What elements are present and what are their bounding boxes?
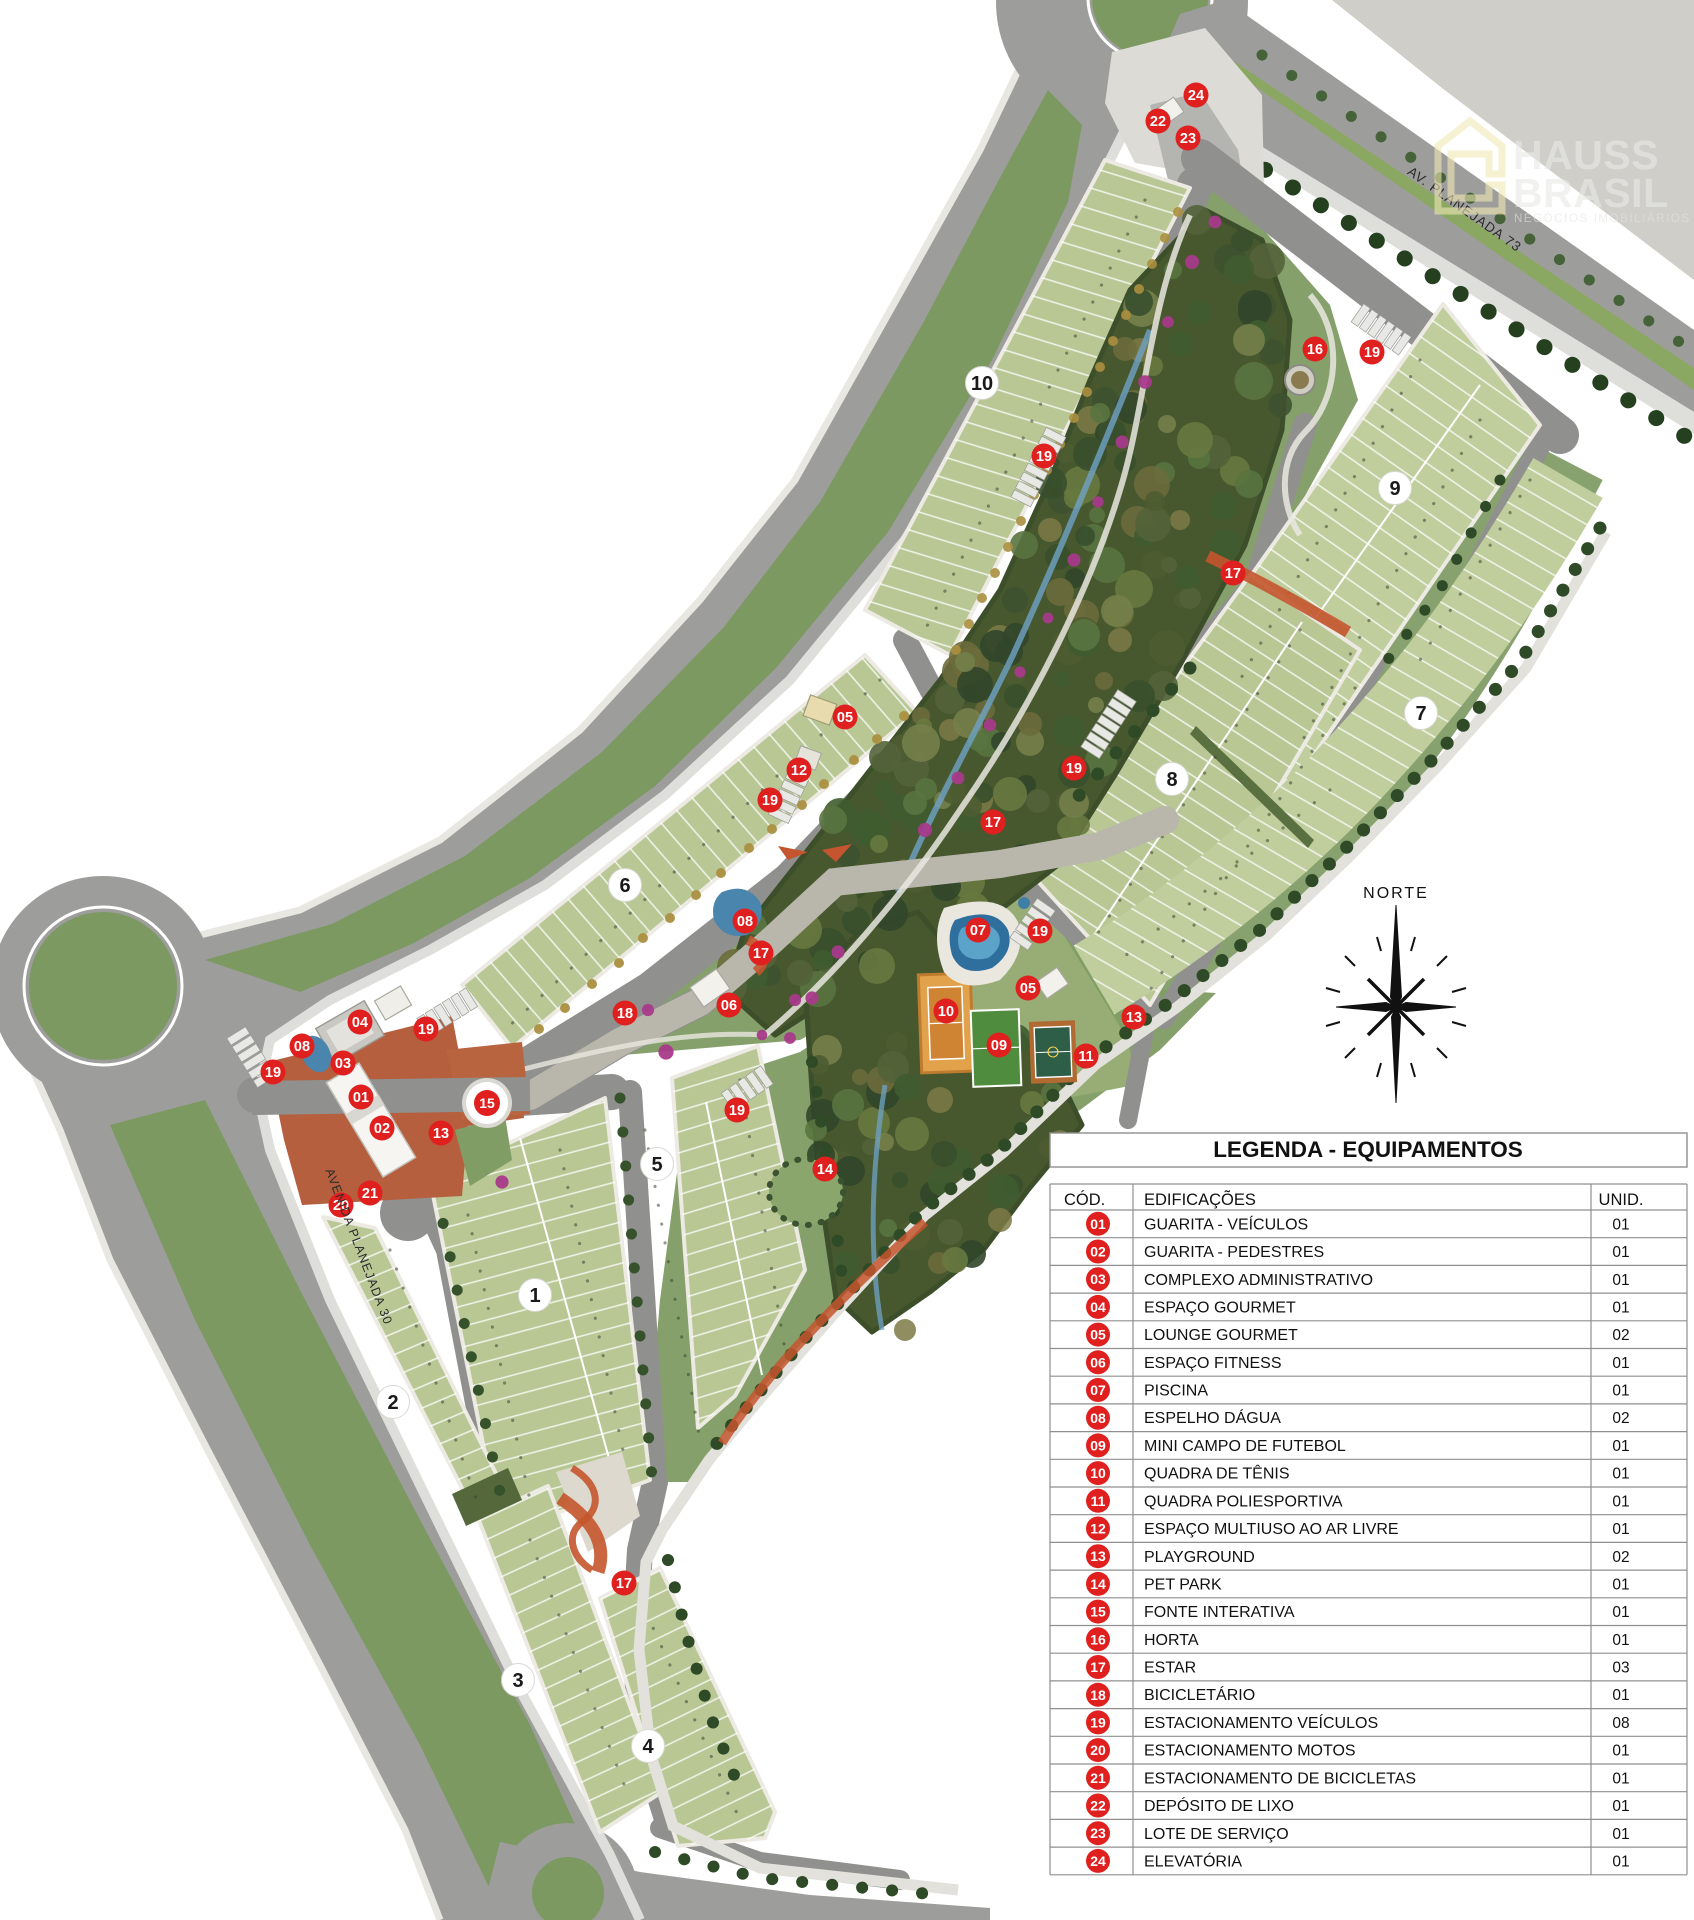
svg-text:02: 02 (374, 1121, 390, 1137)
svg-text:01: 01 (1612, 1632, 1629, 1649)
svg-text:08: 08 (737, 914, 753, 930)
svg-text:02: 02 (1612, 1410, 1629, 1427)
svg-text:GUARITA - VEÍCULOS: GUARITA - VEÍCULOS (1144, 1214, 1308, 1233)
svg-text:BRASIL: BRASIL (1513, 170, 1669, 216)
svg-text:01: 01 (1612, 1521, 1629, 1538)
svg-text:BICICLETÁRIO: BICICLETÁRIO (1144, 1685, 1255, 1704)
svg-text:05: 05 (1090, 1327, 1106, 1343)
svg-text:06: 06 (1090, 1354, 1106, 1370)
svg-text:10: 10 (938, 1004, 954, 1020)
svg-text:19: 19 (729, 1103, 745, 1119)
svg-text:03: 03 (1090, 1271, 1106, 1287)
svg-text:22: 22 (1150, 114, 1166, 130)
svg-text:01: 01 (1612, 1826, 1629, 1843)
svg-text:24: 24 (1188, 88, 1204, 104)
svg-text:15: 15 (479, 1095, 495, 1111)
svg-text:HORTA: HORTA (1144, 1632, 1199, 1649)
svg-text:1: 1 (529, 1285, 540, 1307)
svg-text:COMPLEXO ADMINISTRATIVO: COMPLEXO ADMINISTRATIVO (1144, 1272, 1373, 1289)
svg-text:19: 19 (1364, 345, 1380, 361)
svg-text:7: 7 (1415, 703, 1426, 725)
svg-text:ESPAÇO FITNESS: ESPAÇO FITNESS (1144, 1355, 1282, 1372)
svg-text:08: 08 (294, 1039, 310, 1055)
svg-text:01: 01 (1612, 1466, 1629, 1483)
svg-text:19: 19 (1036, 449, 1052, 465)
svg-text:01: 01 (1612, 1604, 1629, 1621)
svg-text:09: 09 (991, 1038, 1007, 1054)
svg-text:6: 6 (619, 875, 630, 897)
svg-text:01: 01 (1612, 1383, 1629, 1400)
svg-text:15: 15 (1090, 1604, 1106, 1620)
svg-text:02: 02 (1090, 1244, 1106, 1260)
svg-text:24: 24 (1090, 1853, 1106, 1869)
svg-text:3: 3 (512, 1670, 523, 1692)
svg-text:LEGENDA - EQUIPAMENTOS: LEGENDA - EQUIPAMENTOS (1213, 1137, 1523, 1162)
svg-text:01: 01 (1612, 1743, 1629, 1760)
svg-text:04: 04 (352, 1015, 368, 1031)
svg-text:NORTE: NORTE (1363, 885, 1429, 902)
svg-text:04: 04 (1090, 1299, 1106, 1315)
svg-text:01: 01 (1612, 1244, 1629, 1261)
svg-text:02: 02 (1612, 1549, 1629, 1566)
svg-text:20: 20 (1090, 1742, 1106, 1758)
svg-text:9: 9 (1389, 478, 1400, 500)
svg-text:23: 23 (1180, 131, 1196, 147)
svg-text:01: 01 (1612, 1272, 1629, 1289)
svg-text:FONTE INTERATIVA: FONTE INTERATIVA (1144, 1604, 1295, 1621)
svg-text:21: 21 (362, 1186, 378, 1202)
svg-text:MINI CAMPO DE FUTEBOL: MINI CAMPO DE FUTEBOL (1144, 1438, 1346, 1455)
svg-text:01: 01 (1090, 1216, 1106, 1232)
svg-text:01: 01 (1612, 1355, 1629, 1372)
svg-text:17: 17 (985, 815, 1001, 831)
svg-text:09: 09 (1090, 1437, 1106, 1453)
svg-text:03: 03 (1612, 1660, 1629, 1677)
svg-text:DEPÓSITO DE LIXO: DEPÓSITO DE LIXO (1144, 1796, 1294, 1815)
svg-text:ESTACIONAMENTO DE BICICLETAS: ESTACIONAMENTO DE BICICLETAS (1144, 1770, 1416, 1787)
svg-text:22: 22 (1090, 1798, 1106, 1814)
svg-text:4: 4 (642, 1736, 654, 1758)
svg-text:19: 19 (265, 1065, 281, 1081)
svg-text:16: 16 (1307, 342, 1323, 358)
svg-text:17: 17 (1225, 566, 1241, 582)
svg-text:17: 17 (753, 946, 769, 962)
svg-text:14: 14 (817, 1162, 833, 1178)
svg-text:5: 5 (651, 1154, 662, 1176)
svg-text:QUADRA DE TÊNIS: QUADRA DE TÊNIS (1144, 1464, 1290, 1483)
svg-text:19: 19 (762, 793, 778, 809)
svg-text:01: 01 (1612, 1798, 1629, 1815)
svg-text:01: 01 (1612, 1853, 1629, 1870)
svg-text:01: 01 (1612, 1299, 1629, 1316)
svg-text:19: 19 (418, 1022, 434, 1038)
svg-text:EDIFICAÇÕES: EDIFICAÇÕES (1144, 1189, 1256, 1209)
svg-text:14: 14 (1090, 1576, 1106, 1592)
svg-text:07: 07 (970, 923, 986, 939)
svg-text:13: 13 (1090, 1548, 1106, 1564)
svg-text:01: 01 (353, 1090, 369, 1106)
svg-text:UNID.: UNID. (1599, 1191, 1644, 1209)
svg-text:01: 01 (1612, 1493, 1629, 1510)
svg-text:01: 01 (1612, 1438, 1629, 1455)
svg-text:21: 21 (1090, 1770, 1106, 1786)
svg-text:01: 01 (1612, 1770, 1629, 1787)
svg-text:CÓD.: CÓD. (1064, 1190, 1105, 1209)
svg-text:10: 10 (971, 373, 993, 395)
svg-text:11: 11 (1078, 1049, 1093, 1065)
svg-text:05: 05 (837, 710, 853, 726)
svg-text:17: 17 (1090, 1659, 1106, 1675)
svg-text:08: 08 (1612, 1715, 1629, 1732)
svg-text:16: 16 (1090, 1631, 1106, 1647)
svg-text:23: 23 (1090, 1825, 1106, 1841)
svg-text:13: 13 (433, 1126, 449, 1142)
svg-text:06: 06 (721, 998, 737, 1014)
svg-text:19: 19 (1090, 1714, 1106, 1730)
svg-text:18: 18 (1090, 1687, 1106, 1703)
svg-text:PET PARK: PET PARK (1144, 1576, 1222, 1593)
svg-text:17: 17 (616, 1576, 632, 1592)
svg-text:2: 2 (387, 1392, 398, 1414)
svg-text:ESTAR: ESTAR (1144, 1660, 1196, 1677)
svg-text:01: 01 (1612, 1576, 1629, 1593)
svg-text:8: 8 (1166, 769, 1177, 791)
svg-text:03: 03 (335, 1056, 351, 1072)
svg-text:13: 13 (1126, 1010, 1142, 1026)
svg-text:LOTE DE SERVIÇO: LOTE DE SERVIÇO (1144, 1826, 1289, 1843)
svg-text:ESTACIONAMENTO VEÍCULOS: ESTACIONAMENTO VEÍCULOS (1144, 1713, 1378, 1732)
svg-text:PLAYGROUND: PLAYGROUND (1144, 1549, 1255, 1566)
svg-text:LOUNGE GOURMET: LOUNGE GOURMET (1144, 1327, 1298, 1344)
svg-text:11: 11 (1091, 1493, 1106, 1509)
svg-text:ESPELHO DÁGUA: ESPELHO DÁGUA (1144, 1408, 1281, 1427)
svg-text:12: 12 (791, 763, 807, 779)
svg-text:12: 12 (1090, 1521, 1106, 1537)
svg-text:QUADRA POLIESPORTIVA: QUADRA POLIESPORTIVA (1144, 1493, 1343, 1510)
svg-text:ESPAÇO MULTIUSO AO AR LIVRE: ESPAÇO MULTIUSO AO AR LIVRE (1144, 1521, 1399, 1538)
svg-text:07: 07 (1090, 1382, 1106, 1398)
svg-text:18: 18 (617, 1006, 633, 1022)
svg-text:05: 05 (1020, 981, 1036, 997)
svg-text:ESTACIONAMENTO MOTOS: ESTACIONAMENTO MOTOS (1144, 1743, 1356, 1760)
svg-text:GUARITA - PEDESTRES: GUARITA - PEDESTRES (1144, 1244, 1324, 1261)
svg-text:10: 10 (1090, 1465, 1106, 1481)
svg-text:08: 08 (1090, 1410, 1106, 1426)
svg-text:19: 19 (1066, 761, 1082, 777)
svg-text:01: 01 (1612, 1216, 1629, 1233)
svg-text:NEGÓCIOS IMOBILIÁRIOS: NEGÓCIOS IMOBILIÁRIOS (1514, 212, 1691, 225)
svg-text:02: 02 (1612, 1327, 1629, 1344)
svg-text:ESPAÇO GOURMET: ESPAÇO GOURMET (1144, 1299, 1296, 1316)
svg-text:ELEVATÓRIA: ELEVATÓRIA (1144, 1851, 1242, 1870)
svg-text:PISCINA: PISCINA (1144, 1383, 1208, 1400)
svg-text:01: 01 (1612, 1687, 1629, 1704)
svg-text:19: 19 (1032, 924, 1048, 940)
